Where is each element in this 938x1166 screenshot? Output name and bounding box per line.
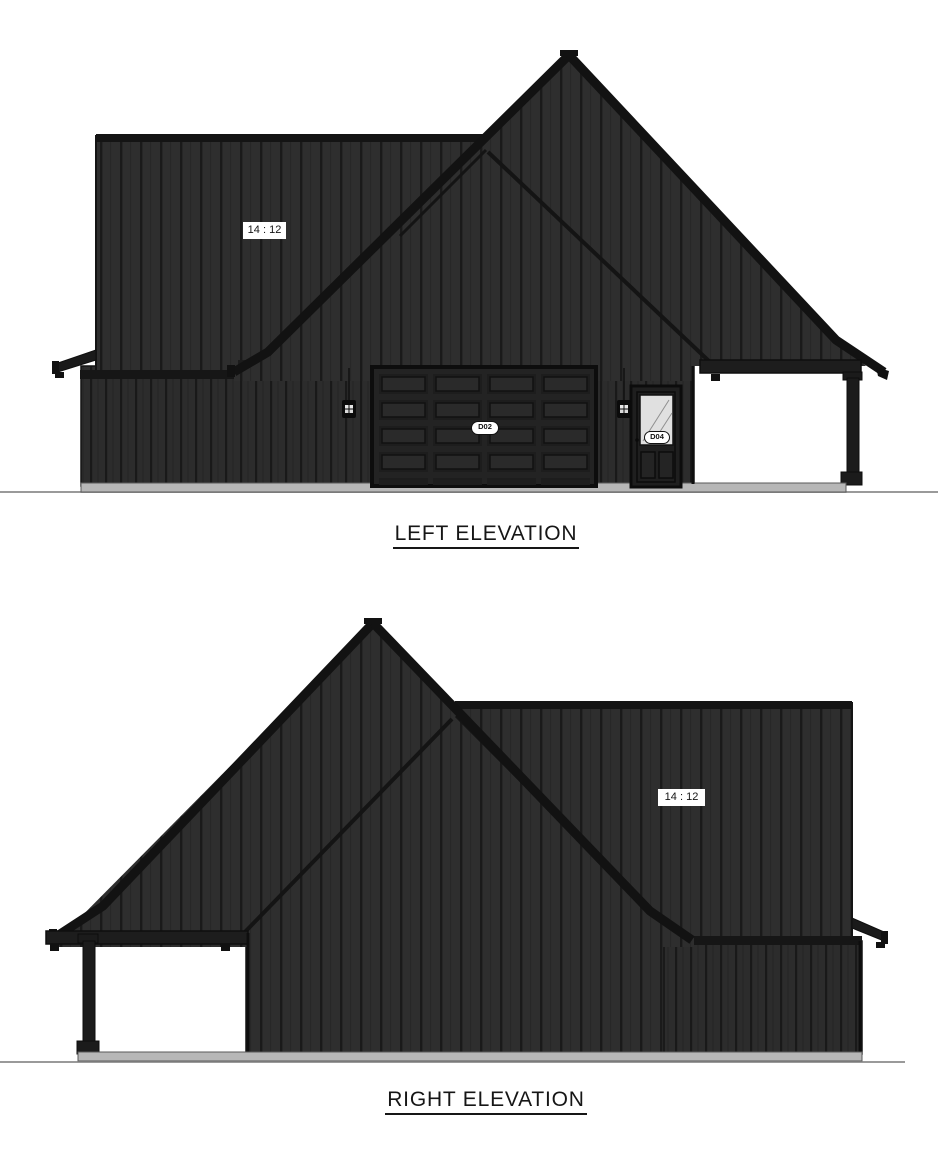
garage-door-panel: [382, 455, 425, 469]
garage-door-panel: [382, 377, 425, 391]
garage-door-panel: [541, 478, 590, 485]
beam-bracket: [221, 944, 230, 951]
garage-door-panel: [382, 429, 425, 443]
porch-post: [77, 934, 99, 1054]
garage-door-panel: [544, 403, 587, 417]
door-tag-garage: D02: [471, 421, 499, 435]
garage-door-panel: [490, 403, 533, 417]
rafter-tail-bracket: [55, 372, 64, 378]
garage-door-panel: [487, 478, 536, 485]
rear-roof-cap: [455, 701, 852, 709]
beam-bracket: [50, 944, 59, 951]
garage-door-panel: [544, 429, 587, 443]
beam-bracket: [711, 374, 720, 381]
porch-post: [841, 372, 862, 485]
entry-door-panel: [641, 452, 655, 478]
garage-door-panel: [490, 377, 533, 391]
garage-door-panel: [436, 403, 479, 417]
garage-door-panel: [382, 403, 425, 417]
rafter-tail-bracket: [876, 942, 885, 948]
porch-beam: [46, 931, 248, 944]
pitch-label: 14 : 12: [243, 222, 286, 239]
entry-door-panel: [659, 452, 673, 478]
left-elevation-title: LEFT ELEVATION: [393, 522, 580, 549]
foundation-slab: [78, 1052, 862, 1061]
ridge-cap: [560, 50, 578, 56]
rear-roof-cap: [96, 134, 491, 142]
porch-beam: [700, 360, 861, 373]
garage-door-panel: [436, 377, 479, 391]
garage-door-panel: [436, 455, 479, 469]
pitch-label: 14 : 12: [658, 789, 705, 806]
door-handle: [635, 438, 639, 442]
garage-door-panel: [544, 455, 587, 469]
eave-fascia: [80, 370, 252, 379]
rake-end-cap: [227, 365, 235, 377]
left-elevation-drawing: [0, 50, 938, 492]
right-elevation-drawing: [0, 618, 905, 1062]
garage-door-panel: [379, 478, 428, 485]
door-tag-entry: D04: [644, 431, 670, 444]
right-elevation-title: RIGHT ELEVATION: [385, 1088, 587, 1115]
ridge-cap: [364, 618, 382, 624]
garage-door-panel: [544, 377, 587, 391]
gable-end-wall: [246, 938, 670, 1056]
drawing-sheet: 14 : 12 D02 D04 LEFT ELEVATION 14 : 12 R…: [0, 0, 938, 1166]
side-wall: [664, 941, 862, 1054]
elevations-drawing: [0, 0, 938, 1166]
garage-door-panel: [490, 455, 533, 469]
garage-door-panel: [433, 478, 482, 485]
